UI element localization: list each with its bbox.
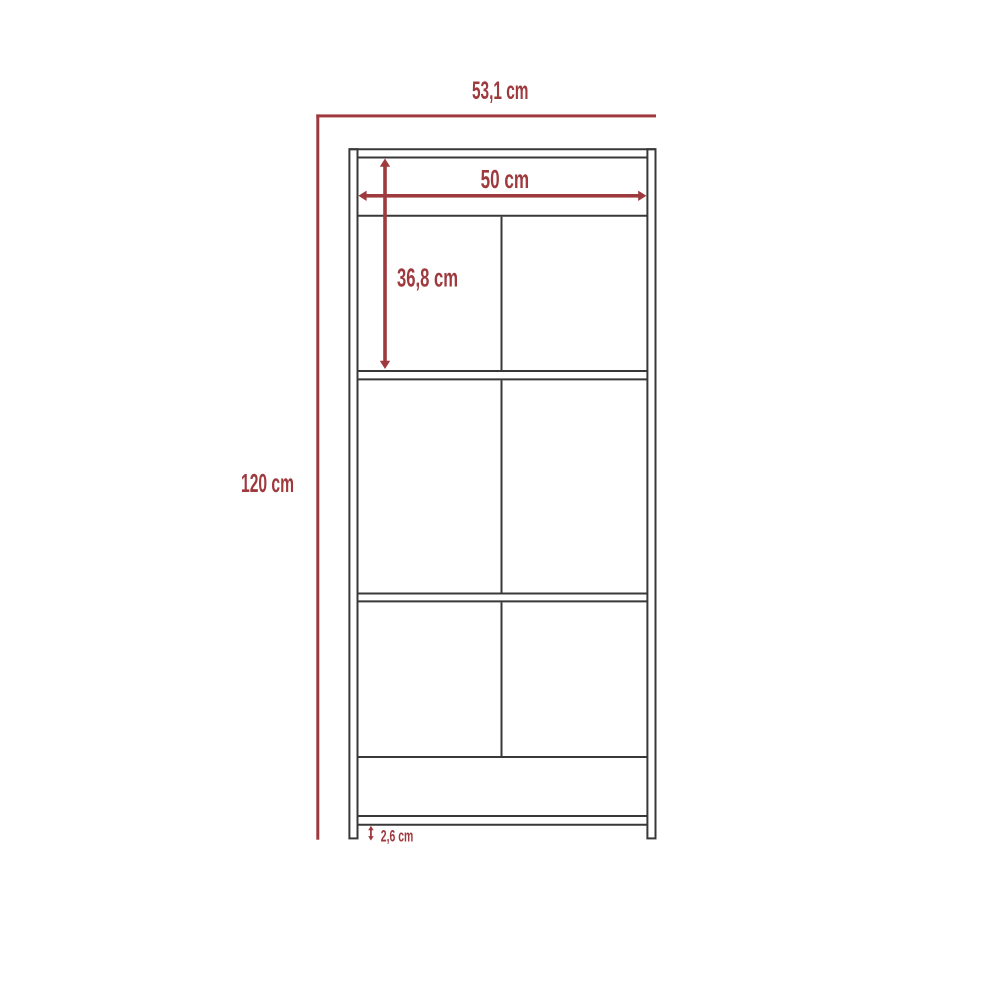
svg-text:36,8 cm: 36,8 cm: [397, 263, 458, 293]
svg-text:50 cm: 50 cm: [481, 164, 529, 194]
svg-text:2,6 cm: 2,6 cm: [381, 828, 414, 846]
svg-text:120 cm: 120 cm: [241, 468, 294, 498]
svg-text:53,1 cm: 53,1 cm: [472, 77, 529, 105]
